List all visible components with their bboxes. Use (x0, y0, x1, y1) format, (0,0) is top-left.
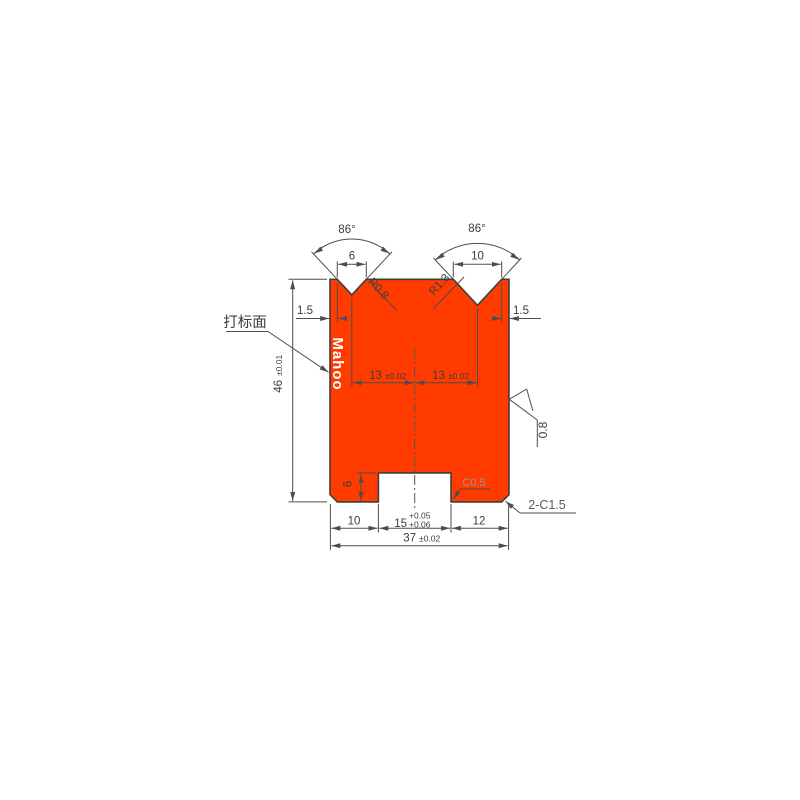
roughness-value: 0.8 (536, 421, 550, 438)
bottom-right-label: 12 (473, 516, 486, 528)
bottom-mid-value: 15 (394, 518, 407, 530)
left-offset-label: 1.5 (297, 305, 313, 317)
height-value: 46 (273, 380, 285, 393)
marking-surface-label: 打标面 (223, 314, 267, 331)
bottom-mid-tol-lower: +0.06 (409, 520, 431, 530)
right-pitch-value: 13 (432, 370, 445, 382)
bottom-left-label: 10 (348, 516, 361, 528)
total-width-value: 37 (403, 533, 416, 545)
left-pitch-value: 13 (369, 370, 382, 382)
corner-chamfer-callout: 2-C1.5 (506, 498, 577, 513)
right-v-width-label: 10 (471, 251, 484, 263)
left-angle-label: 86° (338, 224, 355, 236)
roughness-symbol: 0.8 (509, 389, 550, 447)
right-angle-label: 86° (468, 223, 485, 235)
right-v-width-dim: 10 (453, 251, 501, 278)
corner-chamfer-label: 2-C1.5 (528, 498, 566, 512)
slot-chamfer-label: C0.5 (462, 477, 485, 489)
left-offset-dim: 1.5 (296, 283, 345, 322)
total-width-tol: ±0.02 (419, 534, 440, 544)
slot-depth-label: 6 (343, 481, 355, 487)
watermark-text: Mahoo (329, 337, 346, 390)
left-pitch-tol: ±0.02 (385, 371, 406, 381)
left-v-width-dim: 6 (337, 251, 366, 278)
right-offset-label: 1.5 (513, 305, 529, 317)
right-pitch-tol: ±0.02 (448, 371, 469, 381)
die-technical-drawing: Mahoo 86° 6 86° 10 1. (0, 0, 800, 800)
height-tol: ±0.01 (274, 355, 284, 376)
left-v-width-label: 6 (349, 251, 355, 263)
bottom-dims-row2: 37 ±0.02 (331, 533, 507, 546)
die-body (330, 279, 509, 502)
drawing-canvas: Mahoo 86° 6 86° 10 1. (0, 0, 800, 800)
